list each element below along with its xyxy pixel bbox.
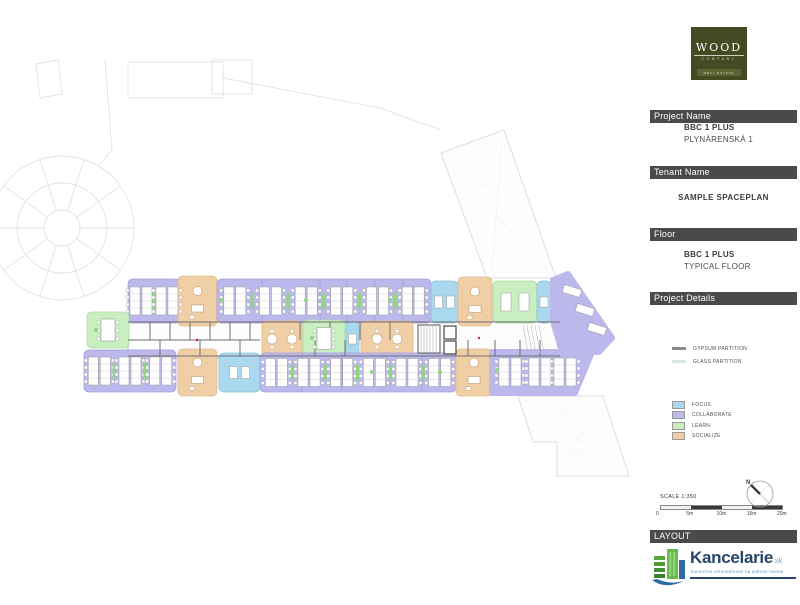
wood-logo-name: WOOD — [694, 41, 744, 56]
compass-icon: N — [740, 474, 778, 512]
zone-swatch — [672, 401, 685, 409]
zone-label: LEARN — [692, 423, 710, 429]
floor-line1: BBC 1 PLUS — [684, 250, 751, 259]
kancelarie-tagline: komerčné nehnuteľnosti na jednom mieste — [691, 569, 784, 574]
wood-logo-subtitle: REAL ESTATE — [697, 69, 741, 76]
kancelarie-tld: .sk — [773, 556, 782, 565]
section-header-project-details: Project Details — [650, 292, 797, 305]
floor-plan-drawing — [0, 0, 650, 600]
compass-north-label: N — [746, 480, 750, 486]
zone-swatch — [672, 411, 685, 419]
section-header-floor: Floor — [650, 228, 797, 241]
zone-label: COLLABORATE — [692, 412, 732, 418]
kancelarie-name: Kancelarie — [690, 548, 773, 567]
zone-legend-row: LEARN — [672, 421, 710, 430]
project-name-block: BBC 1 PLUS PLYNÁRENSKÁ 1 — [684, 123, 753, 144]
wood-logo-company: COMPANY — [691, 57, 747, 61]
scale-label: SCALE 1:350 — [660, 494, 697, 500]
info-panel: WOOD COMPANY REAL ESTATE Project Name BB… — [650, 0, 800, 600]
floor-plan-area — [0, 0, 650, 600]
scale-tick-label: 0 — [656, 511, 672, 517]
wood-company-logo: WOOD COMPANY REAL ESTATE — [691, 27, 747, 80]
section-header-project-name: Project Name — [650, 110, 797, 123]
zone-legend-row: FOCUS — [672, 400, 711, 409]
partition-legend-row: GYPSUM PARTITION — [672, 344, 747, 353]
zone-label: SOCIALIZE — [692, 433, 721, 439]
zone-legend-row: COLLABORATE — [672, 411, 732, 420]
kancelarie-building-icon — [651, 544, 687, 590]
floor-block: BBC 1 PLUS TYPICAL FLOOR — [684, 250, 751, 271]
zone-legend-row: SOCIALIZE — [672, 432, 721, 441]
zone-label: FOCUS — [692, 402, 711, 408]
project-name-line1: BBC 1 PLUS — [684, 123, 753, 132]
partition-swatch — [672, 360, 686, 363]
project-name-line2: PLYNÁRENSKÁ 1 — [684, 135, 753, 144]
floor-line2: TYPICAL FLOOR — [684, 262, 751, 271]
scale-tick-label: 20m — [777, 511, 793, 517]
section-header-layout: LAYOUT — [650, 530, 797, 543]
scale-tick-label: 10m — [717, 511, 733, 517]
partition-label: GYPSUM PARTITION — [693, 346, 747, 352]
kancelarie-underline — [690, 577, 796, 579]
scale-tick-label: 5m — [686, 511, 702, 517]
section-header-tenant-name: Tenant Name — [650, 166, 797, 179]
zone-swatch — [672, 422, 685, 430]
partition-legend-row: GLASS PARTITION — [672, 357, 742, 366]
spaceplan-sheet: { "brand": {"name": "WOOD", "company": "… — [0, 0, 800, 600]
zone-swatch — [672, 432, 685, 440]
partition-swatch — [672, 347, 686, 350]
tenant-name-value: SAMPLE SPACEPLAN — [650, 193, 797, 202]
partition-label: GLASS PARTITION — [693, 359, 742, 365]
